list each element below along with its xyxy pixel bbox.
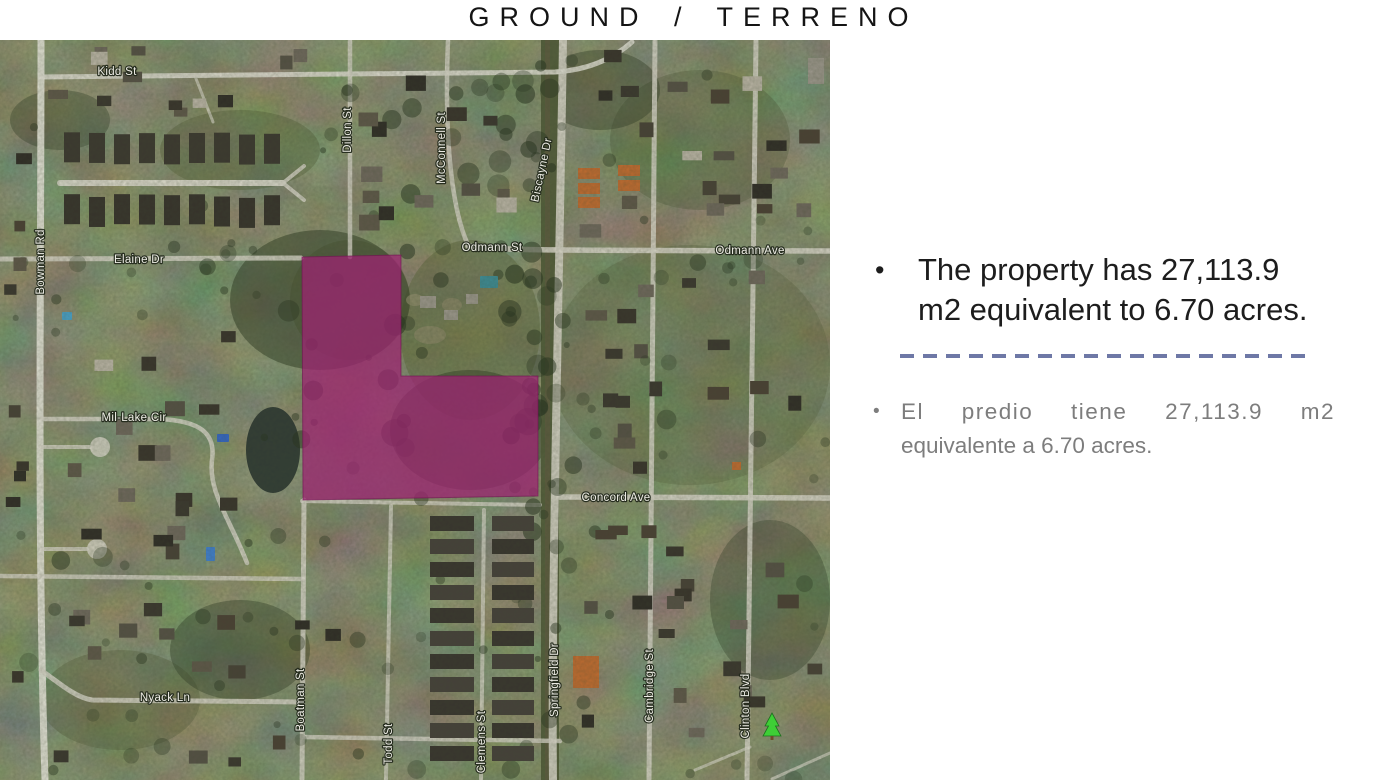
street-label-cambridge-st: Cambridge St: [644, 649, 656, 723]
street-label-dillon-st: Dillon St: [342, 107, 354, 153]
satellite-map-image: Kidd StDillon StMcConnell StBiscayne DrO…: [0, 40, 830, 780]
content-panel: • The property has 27,113.9 m2 equivalen…: [872, 250, 1347, 520]
street-label-bowman-rd: Bowman Rd: [35, 229, 47, 294]
street-label-clinton-blvd: Clinton Blvd: [740, 674, 752, 739]
bullet-en-text: The property has 27,113.9 m2 equivalent …: [918, 250, 1346, 330]
satellite-map: Kidd StDillon StMcConnell StBiscayne DrO…: [0, 40, 830, 780]
street-label-nyack-ln: Nyack Ln: [140, 692, 190, 704]
street-label-kidd-st: Kidd St: [97, 66, 137, 78]
bullet-en-line2: m2 equivalent to 6.70 acres.: [918, 290, 1346, 330]
bullet-en: • The property has 27,113.9 m2 equivalen…: [872, 250, 1346, 330]
street-label-concord-ave: Concord Ave: [582, 492, 651, 504]
bullet-es-line1: El predio tiene 27,113.9 m2: [901, 395, 1335, 429]
street-label-mil-lake-cir: Mil-Lake Cir: [102, 412, 167, 424]
bullet-en-line1: The property has 27,113.9: [918, 250, 1346, 290]
street-label-mcconnell-st: McConnell St: [436, 112, 448, 184]
street-label-odmann-st: Odmann St: [462, 242, 523, 254]
street-label-springfield-dr: Springfield Dr: [549, 643, 561, 717]
bullet-es: • El predio tiene 27,113.9 m2 equivalent…: [872, 395, 1335, 463]
bullet-es-text: El predio tiene 27,113.9 m2 equivalente …: [901, 395, 1335, 463]
street-label-odmann-ave: Odmann Ave: [715, 245, 784, 257]
street-label-boatman-st: Boatman St: [295, 668, 307, 732]
dashed-divider: [900, 354, 1313, 358]
slide: GROUND / TERRENO: [0, 0, 1387, 780]
slide-title: GROUND / TERRENO: [0, 2, 1387, 33]
bullet-marker-icon: •: [872, 395, 901, 463]
bullet-es-line2: equivalente a 6.70 acres.: [901, 429, 1335, 463]
bullet-marker-icon: •: [872, 250, 918, 330]
street-label-todd-st: Todd St: [383, 723, 395, 765]
street-label-clemens-st: Clemens St: [476, 710, 488, 773]
street-label-elaine-dr: Elaine Dr: [114, 254, 164, 266]
